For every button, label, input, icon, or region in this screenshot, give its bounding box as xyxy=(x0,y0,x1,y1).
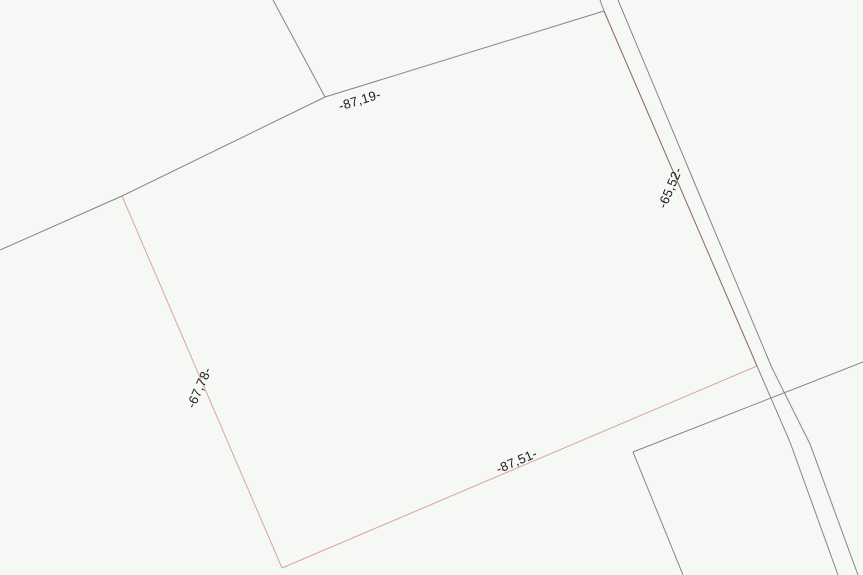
road-left-line-upper-stub xyxy=(600,0,604,11)
neighbor-edge-south xyxy=(633,452,683,575)
dimension-label-east: -65,52- xyxy=(655,165,686,211)
parcel-east-edge-on-road xyxy=(604,11,757,366)
map-canvas[interactable]: -87,19--65,52--87,51--67,78- xyxy=(0,0,863,575)
dimension-label-west: -67,78- xyxy=(183,365,214,411)
cadastral-map-view[interactable]: -87,19--65,52--87,51--67,78- xyxy=(0,0,863,575)
neighbor-line-top xyxy=(273,0,325,97)
dimension-label-north: -87,19- xyxy=(337,86,383,113)
neighbor-crossing-line-southeast xyxy=(633,362,863,452)
dimension-label-south: -87,51- xyxy=(494,446,540,477)
road-left-line-lower xyxy=(757,366,838,575)
neighbor-boundary-northwest-and-parcel-north-edge xyxy=(0,11,604,250)
road-right-line xyxy=(618,0,858,575)
